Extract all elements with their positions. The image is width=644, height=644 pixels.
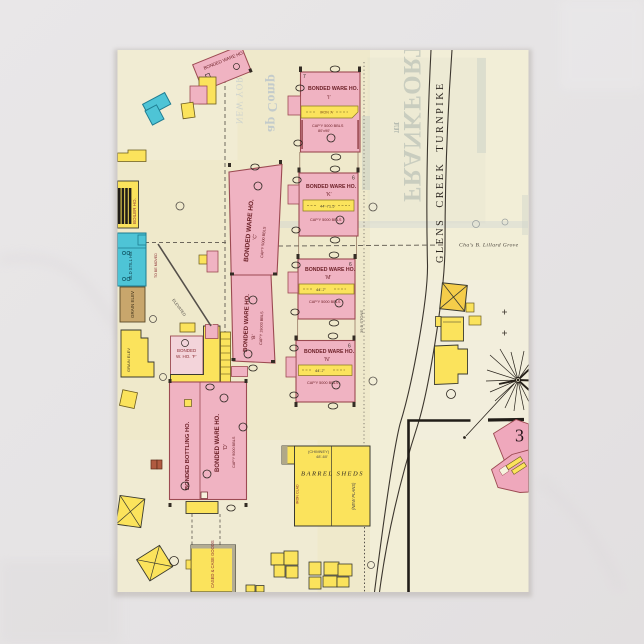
svg-text:3: 3 bbox=[515, 426, 524, 446]
svg-text:6: 6 bbox=[352, 176, 355, 182]
svg-text:80’x90’: 80’x90’ bbox=[318, 129, 330, 133]
svg-text:GRAIN ELEV: GRAIN ELEV bbox=[126, 348, 131, 372]
svg-text:’C’: ’C’ bbox=[252, 234, 258, 240]
svg-text:’M’: ’M’ bbox=[325, 275, 331, 281]
svg-text:CAP’Y 5000 BBLS: CAP’Y 5000 BBLS bbox=[310, 218, 342, 222]
svg-text:7: 7 bbox=[303, 74, 306, 80]
svg-text:BONDED: BONDED bbox=[177, 348, 197, 353]
svg-text:’N’: ’N’ bbox=[324, 357, 330, 363]
svg-text:44’-7’: 44’-7’ bbox=[315, 368, 325, 373]
svg-text:GRAIN ELEV: GRAIN ELEV bbox=[130, 291, 135, 318]
svg-text:(NEW PLANS): (NEW PLANS) bbox=[351, 482, 356, 510]
svg-text:BONDED WARE HO.: BONDED WARE HO. bbox=[215, 414, 221, 472]
svg-text:BONDED WARE HO.: BONDED WARE HO. bbox=[305, 267, 356, 273]
svg-text:IRON ’A’: IRON ’A’ bbox=[320, 111, 334, 115]
svg-text:GLENS CREEK TURNPIKE: GLENS CREEK TURNPIKE bbox=[435, 81, 446, 263]
svg-text:’B’: ’B’ bbox=[251, 334, 257, 340]
svg-text:BOILER HO.: BOILER HO. bbox=[132, 198, 137, 224]
svg-text:48’-60’: 48’-60’ bbox=[316, 454, 328, 459]
svg-text:CAP’Y 9000 BBLS: CAP’Y 9000 BBLS bbox=[232, 436, 236, 468]
svg-text:W. HO. ’F’: W. HO. ’F’ bbox=[176, 354, 197, 359]
svg-text:’K’: ’K’ bbox=[326, 192, 332, 198]
svg-text:BONDED BOTTLING HO.: BONDED BOTTLING HO. bbox=[185, 421, 191, 490]
svg-text:44’-7’: 44’-7’ bbox=[316, 287, 326, 292]
svg-text:ππ: ππ bbox=[391, 122, 402, 133]
svg-text:’I’: ’I’ bbox=[327, 95, 331, 101]
svg-text:TO BE MOVED: TO BE MOVED bbox=[154, 253, 158, 278]
svg-text:Cha’s B. Lillard Grove: Cha’s B. Lillard Grove bbox=[459, 243, 519, 249]
svg-text:CAP’Y 5000 BBLS: CAP’Y 5000 BBLS bbox=[312, 124, 344, 128]
svg-text:FRANKFORT: FRANKFORT bbox=[398, 40, 425, 202]
svg-text:ap Comp: ap Comp bbox=[264, 74, 279, 132]
svg-text:CASED & CASE GOODS: CASED & CASE GOODS bbox=[210, 540, 215, 588]
svg-text:’D’: ’D’ bbox=[223, 444, 229, 450]
svg-text:BONDED WARE HO.: BONDED WARE HO. bbox=[306, 184, 357, 190]
svg-text:IRON CLAD: IRON CLAD bbox=[296, 484, 300, 504]
svg-text:39 B STONE: 39 B STONE bbox=[359, 310, 364, 333]
svg-text:BONDED WARE HO.: BONDED WARE HO. bbox=[308, 86, 359, 92]
svg-text:BONDED WARE HO.: BONDED WARE HO. bbox=[304, 349, 355, 355]
svg-text:44’-71.5’: 44’-71.5’ bbox=[320, 204, 335, 209]
svg-text:BARREL SHEDS: BARREL SHEDS bbox=[301, 471, 364, 478]
svg-text:OLD STILL HO.: OLD STILL HO. bbox=[128, 251, 133, 280]
